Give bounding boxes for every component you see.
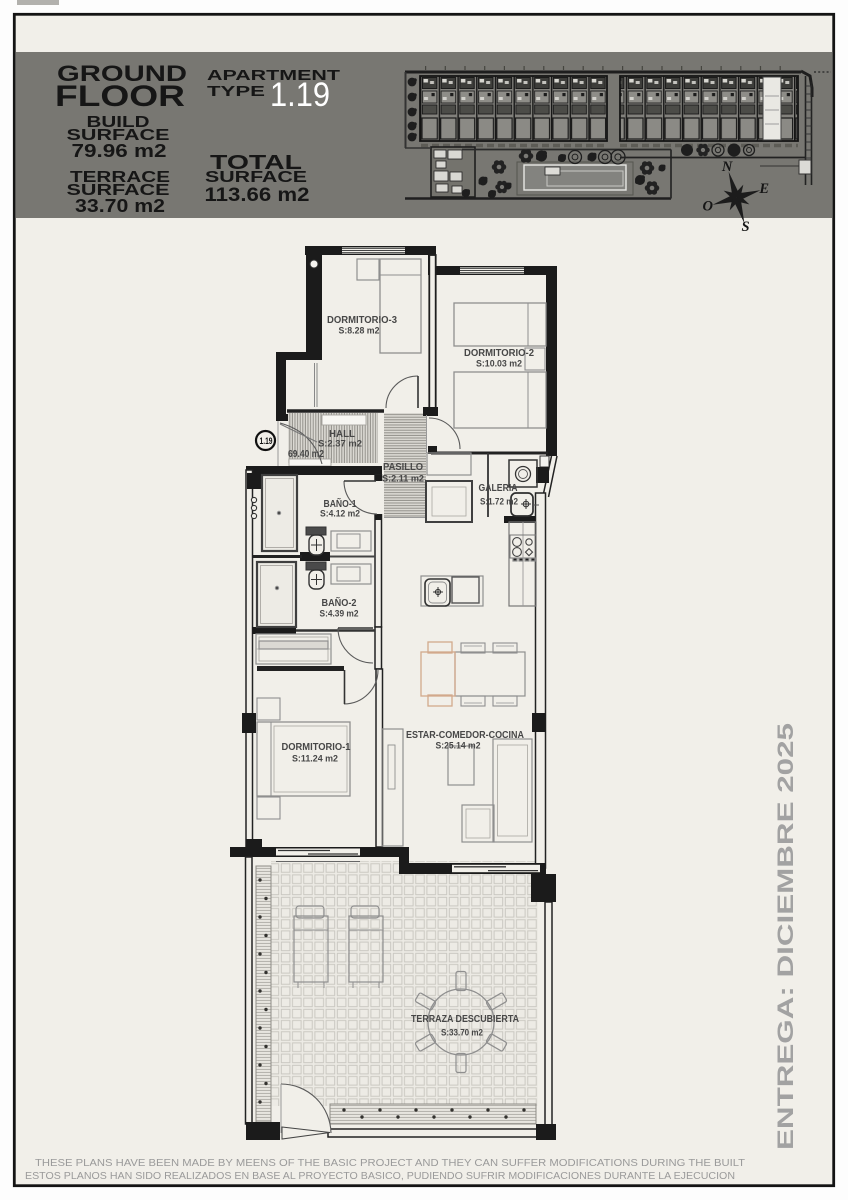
svg-text:S: S: [742, 219, 750, 235]
svg-text:PASILLO: PASILLO: [383, 462, 423, 473]
svg-text:GALERIA: GALERIA: [479, 483, 518, 494]
svg-text:1.19: 1.19: [270, 76, 330, 114]
svg-text:THESE PLANS HAVE BEEN MADE BY: THESE PLANS HAVE BEEN MADE BY MEENS OF T…: [35, 1158, 745, 1169]
svg-text:S:1.72 m2: S:1.72 m2: [480, 497, 518, 508]
svg-text:DORMITORIO-1: DORMITORIO-1: [282, 742, 351, 753]
svg-text:ENTREGA: DICIEMBRE 2025: ENTREGA: DICIEMBRE 2025: [773, 723, 798, 1150]
svg-text:ESTAR-COMEDOR-COCINA: ESTAR-COMEDOR-COCINA: [406, 730, 524, 741]
svg-text:FLOOR: FLOOR: [55, 80, 185, 113]
svg-text:S:4.12 m2: S:4.12 m2: [320, 509, 360, 520]
svg-text:S:11.24 m2: S:11.24 m2: [292, 754, 338, 765]
svg-text:S:2.11 m2: S:2.11 m2: [382, 474, 424, 485]
svg-text:S:25.14 m2: S:25.14 m2: [436, 741, 481, 752]
svg-text:N: N: [721, 159, 733, 175]
svg-text:S:33.70 m2: S:33.70 m2: [441, 1028, 483, 1039]
svg-text:DORMITORIO-3: DORMITORIO-3: [327, 315, 397, 326]
svg-text:S:8.28 m2: S:8.28 m2: [339, 326, 380, 337]
svg-text:O: O: [703, 198, 714, 214]
svg-text:BAÑO-2: BAÑO-2: [322, 596, 357, 609]
svg-text:ESTOS PLANOS HAN SIDO REALIZAD: ESTOS PLANOS HAN SIDO REALIZADOS EN BASE…: [25, 1171, 735, 1182]
svg-text:33.70 m2: 33.70 m2: [75, 196, 165, 216]
svg-text:S:10.03 m2: S:10.03 m2: [476, 359, 522, 370]
svg-text:TERRAZA DESCUBIERTA: TERRAZA DESCUBIERTA: [411, 1014, 519, 1025]
svg-text:79.96 m2: 79.96 m2: [72, 141, 167, 161]
svg-text:E: E: [758, 181, 769, 197]
svg-text:S:2.37 m2: S:2.37 m2: [318, 439, 362, 450]
svg-text:1.19: 1.19: [260, 436, 273, 446]
svg-text:113.66 m2: 113.66 m2: [205, 185, 310, 206]
svg-text:SURFACE: SURFACE: [205, 169, 307, 186]
svg-text:TYPE: TYPE: [207, 83, 265, 100]
svg-text:S:4.39 m2: S:4.39 m2: [320, 609, 359, 620]
svg-text:DORMITORIO-2: DORMITORIO-2: [464, 348, 534, 359]
svg-text:69.40 m2: 69.40 m2: [288, 449, 324, 460]
